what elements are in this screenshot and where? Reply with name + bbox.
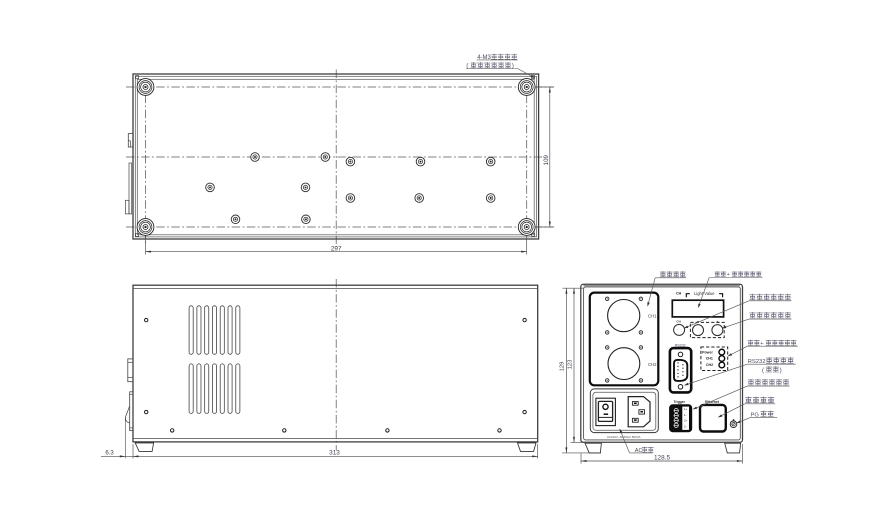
svg-text:(: (	[762, 367, 765, 374]
svg-text:1-: 1-	[684, 413, 687, 417]
svg-text:Power: Power	[702, 350, 713, 354]
svg-text:2+: 2+	[684, 419, 688, 423]
svg-text:1+: 1+	[684, 407, 688, 411]
svg-text:RS232: RS232	[675, 343, 686, 347]
svg-text:CH: CH	[676, 292, 682, 296]
svg-text:129: 129	[560, 362, 566, 372]
svg-text:123: 123	[568, 359, 574, 370]
svg-text:2-: 2-	[684, 424, 687, 428]
svg-text:Trigger: Trigger	[673, 400, 685, 404]
svg-text:6.3: 6.3	[105, 450, 114, 456]
svg-text:CH2: CH2	[706, 363, 713, 367]
svg-text:): )	[780, 367, 782, 374]
svg-text:Light Value: Light Value	[694, 291, 715, 296]
svg-text:128.5: 128.5	[654, 454, 670, 461]
svg-text:109: 109	[543, 154, 550, 165]
svg-text:CH1: CH1	[648, 313, 657, 318]
svg-text:297: 297	[331, 245, 342, 252]
svg-text:313: 313	[329, 449, 340, 456]
svg-text:CH2: CH2	[648, 362, 657, 367]
svg-text:CH1: CH1	[706, 357, 713, 361]
svg-text:CH: CH	[676, 319, 680, 323]
